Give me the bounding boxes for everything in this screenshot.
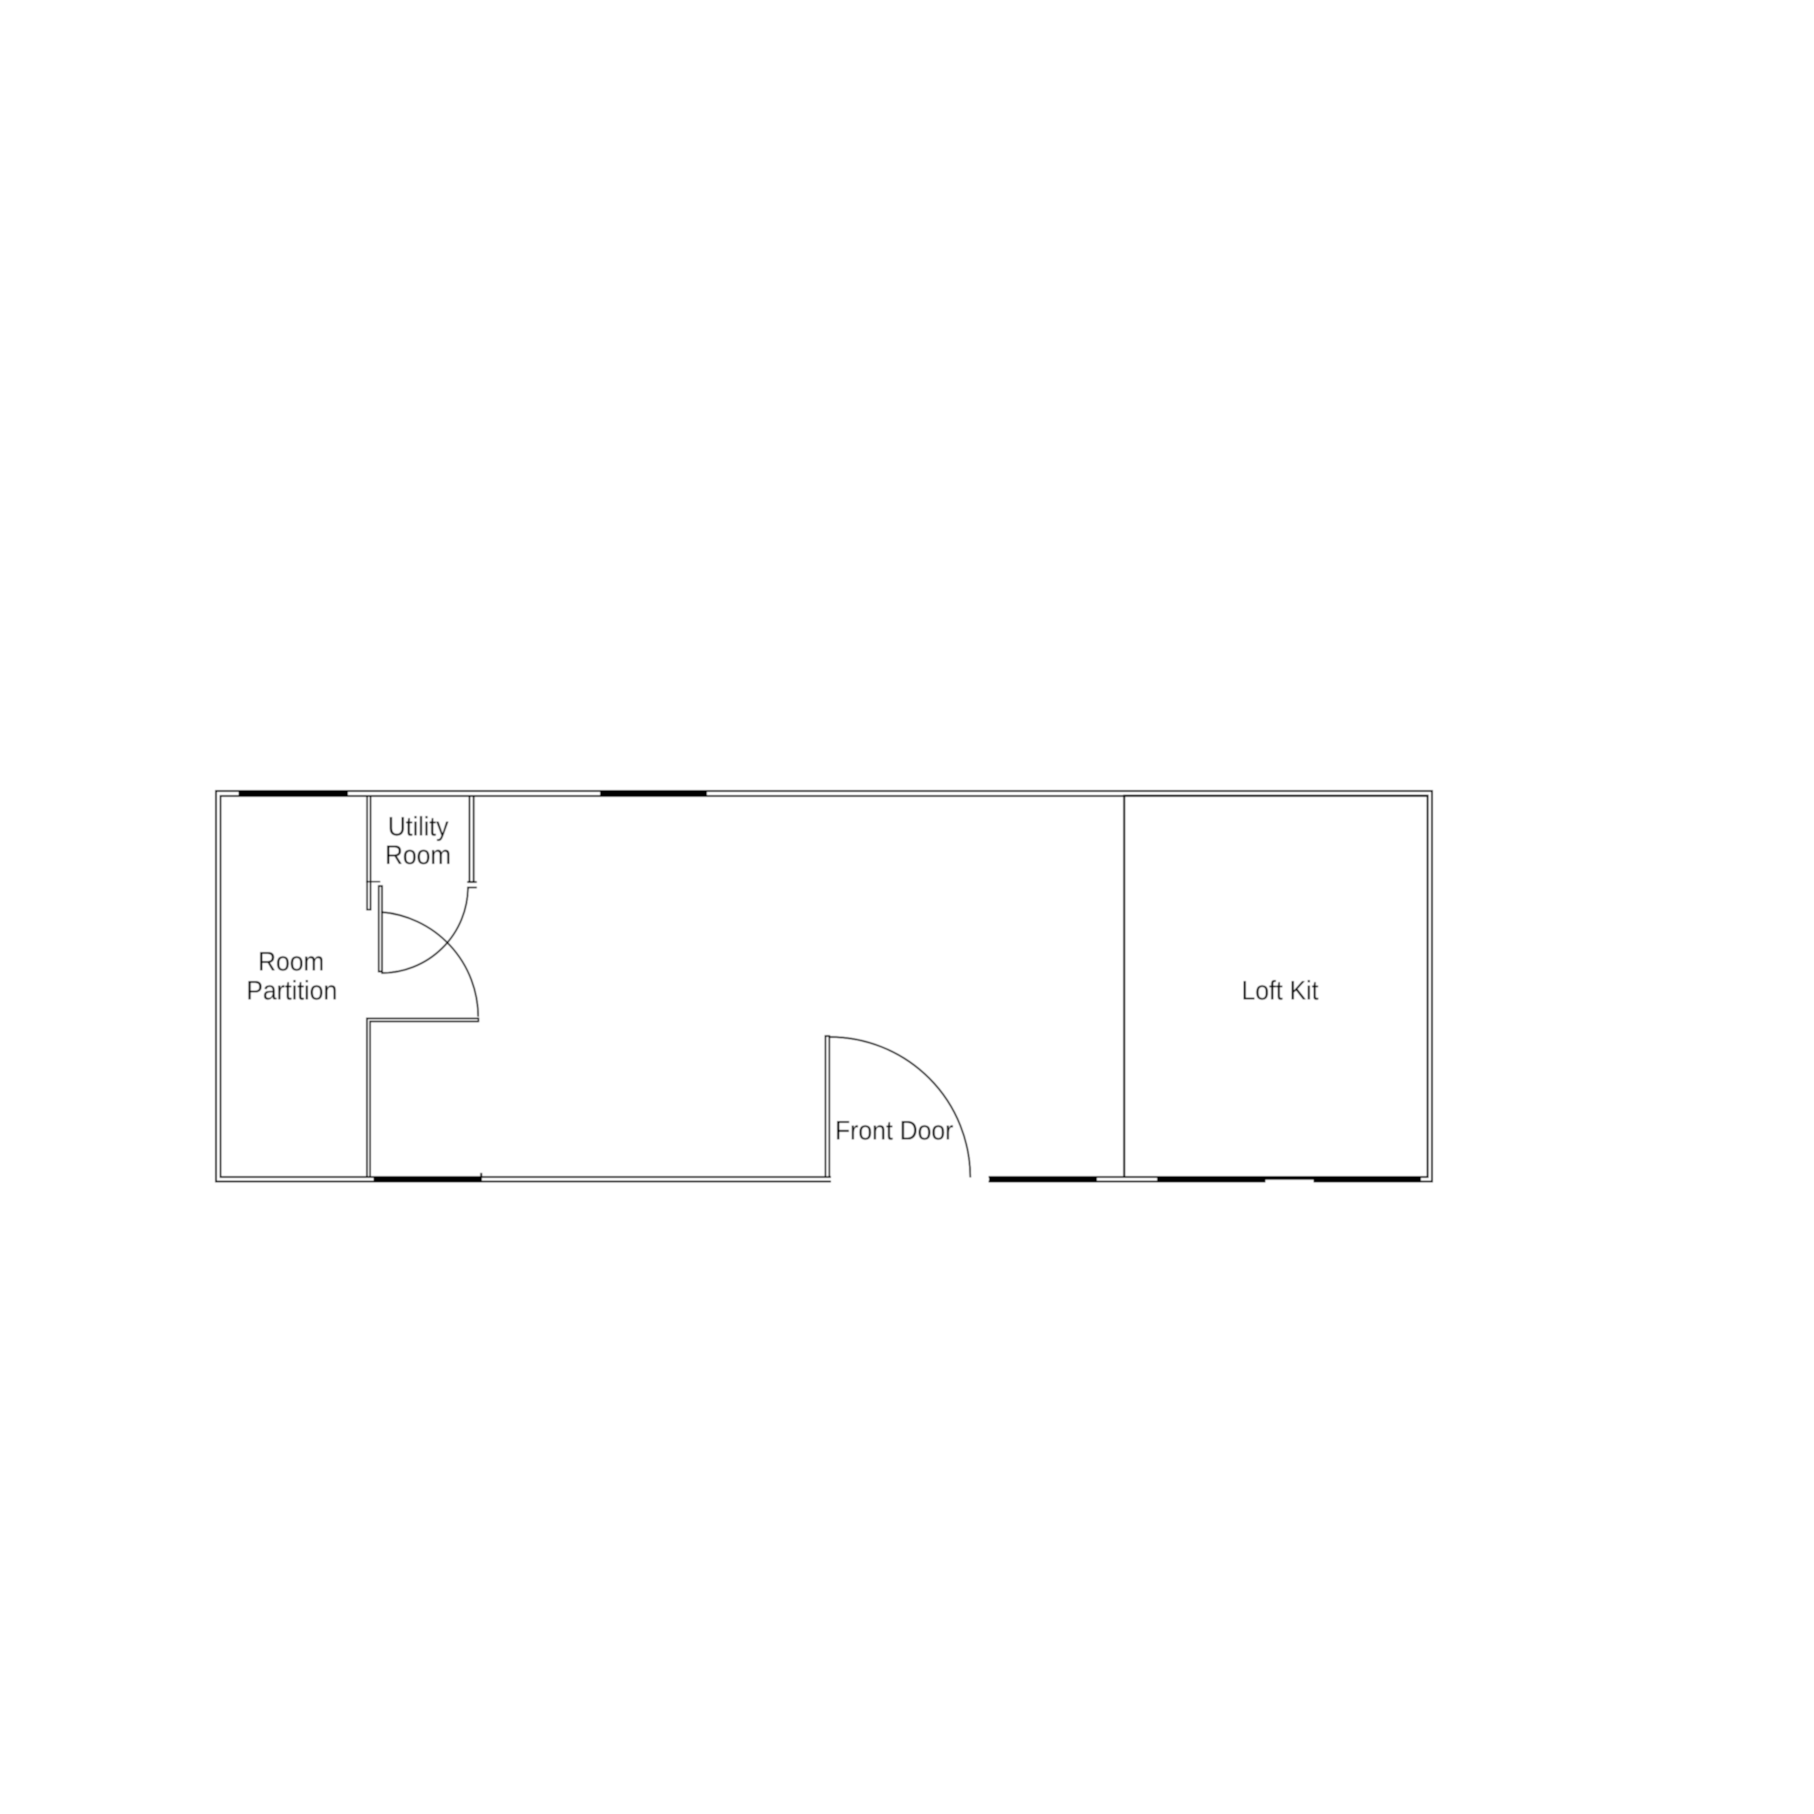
svg-text:Front Door: Front Door (835, 1117, 954, 1146)
svg-text:Room: Room (385, 841, 451, 870)
svg-text:Room: Room (258, 948, 324, 977)
svg-text:Partition: Partition (246, 977, 337, 1006)
svg-text:Loft Kit: Loft Kit (1241, 977, 1318, 1006)
svg-text:Utility: Utility (388, 813, 449, 842)
